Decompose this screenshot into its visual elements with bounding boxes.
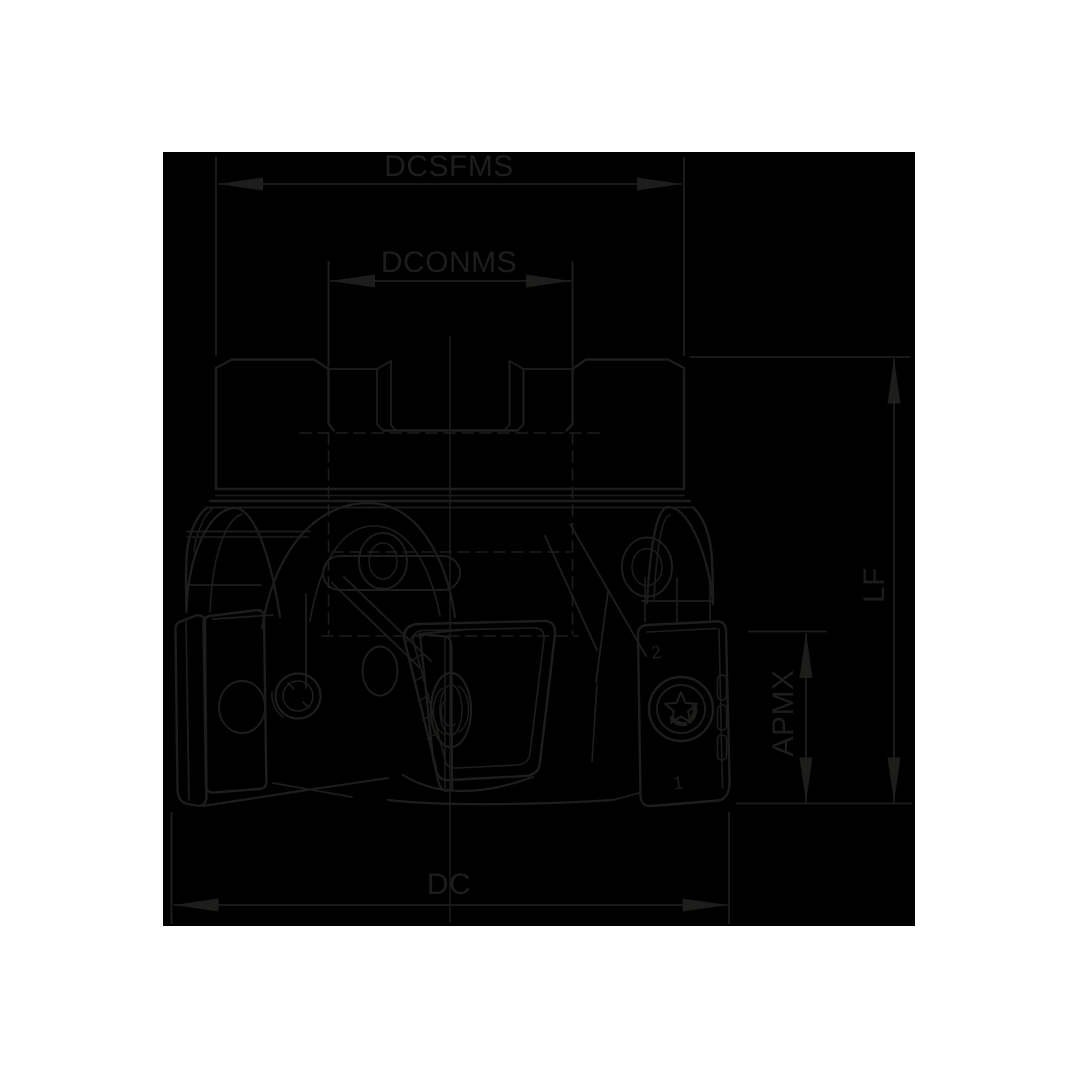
label-lf: LF bbox=[858, 567, 891, 603]
label-dcsfms: DCSFMS bbox=[384, 150, 514, 183]
label-apmx: APMX bbox=[767, 669, 800, 756]
label-dconms: DCONMS bbox=[381, 246, 517, 279]
label-dc: DC bbox=[427, 868, 471, 901]
black-panel bbox=[163, 152, 915, 926]
insert-index-mark-bottom: 1 bbox=[672, 772, 685, 793]
technical-drawing: 2 1 bbox=[0, 0, 1080, 1080]
